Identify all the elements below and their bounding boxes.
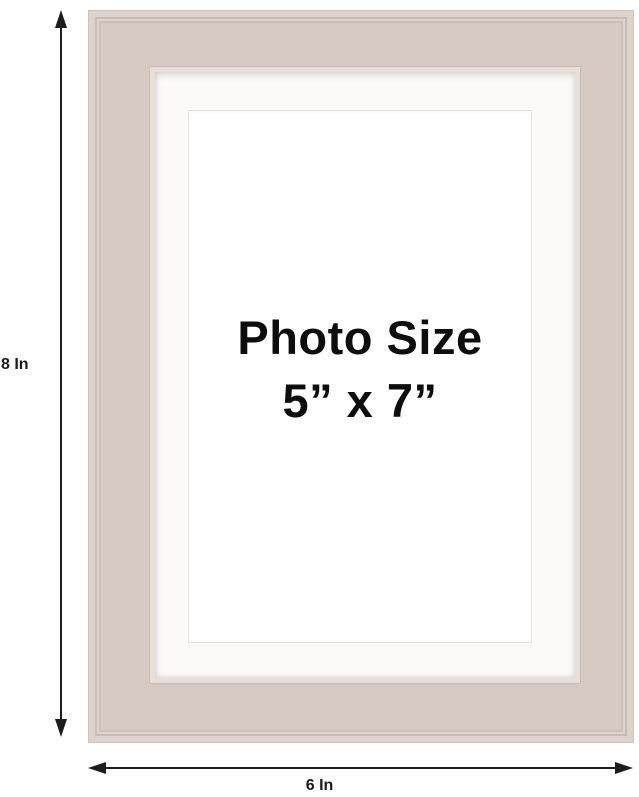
width-dimension-label: 6 In	[0, 777, 639, 795]
down-arrowhead-icon	[55, 719, 67, 737]
up-arrowhead-icon	[55, 10, 67, 28]
picture-frame: Photo Size 5” x 7”	[88, 10, 634, 743]
height-dimension-label: 8 In	[1, 356, 29, 374]
horizontal-arrow-line	[100, 767, 622, 769]
left-arrowhead-icon	[88, 762, 106, 774]
photo-size-line2: 5” x 7”	[237, 370, 482, 432]
vertical-arrow-line	[60, 24, 62, 724]
frame-mat: Photo Size 5” x 7”	[155, 72, 575, 678]
photo-opening: Photo Size 5” x 7”	[188, 110, 532, 643]
right-arrowhead-icon	[615, 762, 633, 774]
photo-size-line1: Photo Size	[237, 307, 482, 369]
photo-size-text: Photo Size 5” x 7”	[237, 307, 482, 431]
frame-dimension-diagram: 8 In 6 In Photo Size 5” x 7”	[0, 0, 639, 797]
